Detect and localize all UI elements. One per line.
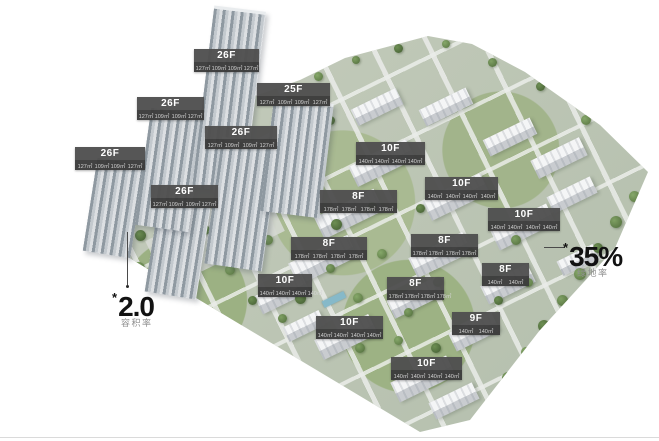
unit-area-value: 127㎡ [260, 97, 275, 105]
unit-area-value: 127㎡ [208, 140, 223, 148]
unit-area-value: 178㎡ [389, 291, 404, 299]
unit-area-value: 140㎡ [479, 326, 494, 334]
unit-area-value: 127㎡ [77, 161, 92, 169]
unit-area-value: 140㎡ [308, 288, 323, 296]
tree [581, 115, 591, 125]
unit-area-list: 140㎡140㎡140㎡140㎡ [425, 190, 498, 200]
tree [277, 360, 287, 370]
building-block [428, 382, 479, 419]
asterisk-mark: * [563, 240, 568, 255]
unit-area-list: 127㎡109㎡109㎡127㎡ [257, 96, 330, 106]
floor-count-label: 8F [320, 190, 397, 203]
floor-count-label: 25F [257, 83, 330, 96]
floor-badge: 10F140㎡140㎡140㎡140㎡ [488, 208, 560, 231]
unit-area-value: 140㎡ [391, 156, 406, 164]
unit-area-value: 109㎡ [228, 63, 243, 71]
unit-area-value: 109㎡ [185, 199, 200, 207]
image-bottom-edge [0, 437, 659, 438]
unit-area-value: 140㎡ [358, 156, 373, 164]
floor-badge: 8F178㎡178㎡178㎡178㎡ [387, 277, 444, 300]
unit-area-list: 178㎡178㎡178㎡178㎡ [387, 290, 444, 300]
unit-area-value: 109㎡ [277, 97, 292, 105]
unit-area-list: 140㎡140㎡140㎡140㎡ [356, 155, 425, 165]
unit-area-value: 140㎡ [428, 191, 443, 199]
tree [488, 58, 497, 67]
unit-area-value: 140㎡ [394, 371, 409, 379]
floor-badge: 26F127㎡109㎡109㎡127㎡ [75, 147, 145, 170]
unit-area-value: 178㎡ [295, 251, 310, 259]
tree [132, 262, 145, 275]
greening-rate-label: 绿地率 [577, 266, 609, 279]
unit-area-value: 140㎡ [318, 330, 333, 338]
unit-area-value: 140㎡ [260, 288, 275, 296]
unit-area-value: 178㎡ [378, 204, 393, 212]
unit-area-value: 109㎡ [212, 63, 227, 71]
tree [353, 293, 363, 303]
building-block [419, 88, 474, 127]
tree [629, 191, 640, 202]
tree [610, 216, 622, 228]
tree [394, 44, 403, 53]
floor-badge: 26F127㎡109㎡109㎡127㎡ [194, 49, 259, 72]
unit-area-value: 127㎡ [201, 199, 216, 207]
floor-badge: 9F140㎡140㎡ [452, 312, 500, 335]
floor-badge: 8F178㎡178㎡178㎡178㎡ [291, 237, 367, 260]
floor-count-label: 10F [356, 142, 425, 155]
tree [404, 308, 413, 317]
tree [536, 82, 545, 91]
unit-area-value: 178㎡ [405, 291, 420, 299]
unit-area-value: 140㎡ [411, 371, 426, 379]
unit-area-value: 109㎡ [295, 97, 310, 105]
unit-area-list: 140㎡140㎡140㎡140㎡ [316, 329, 383, 339]
tree [326, 264, 335, 273]
tree [331, 219, 342, 230]
unit-area-value: 127㎡ [259, 140, 274, 148]
tree [557, 295, 568, 306]
tree [324, 392, 336, 404]
unit-area-list: 140㎡140㎡140㎡140㎡ [488, 221, 560, 231]
unit-area-value: 127㎡ [153, 199, 168, 207]
unit-area-list: 178㎡178㎡178㎡178㎡ [320, 203, 397, 213]
tree [377, 249, 387, 259]
floor-badge: 26F127㎡109㎡109㎡127㎡ [137, 97, 204, 120]
unit-area-value: 178㎡ [324, 204, 339, 212]
tree [196, 306, 209, 319]
floor-badge: 10F140㎡140㎡140㎡140㎡ [391, 357, 462, 380]
unit-area-list: 140㎡140㎡ [452, 325, 500, 335]
unit-area-value: 140㎡ [508, 222, 523, 230]
unit-area-value: 140㎡ [542, 222, 557, 230]
unit-area-value: 140㎡ [458, 326, 473, 334]
tree [511, 235, 521, 245]
tree [538, 320, 550, 332]
unit-area-value: 140㎡ [525, 222, 540, 230]
unit-area-list: 127㎡109㎡109㎡127㎡ [194, 62, 259, 72]
unit-area-value: 109㎡ [155, 111, 170, 119]
floor-count-label: 10F [258, 274, 312, 287]
building-block [351, 88, 404, 126]
tree [355, 343, 365, 353]
asterisk-mark: * [112, 290, 117, 305]
unit-area-value: 109㎡ [111, 161, 126, 169]
tree [431, 343, 441, 353]
unit-area-value: 140㎡ [375, 156, 390, 164]
unit-area-value: 178㎡ [313, 251, 328, 259]
unit-area-value: 178㎡ [445, 248, 460, 256]
tree [314, 72, 323, 81]
tree [213, 317, 223, 327]
unit-area-list: 178㎡178㎡178㎡178㎡ [291, 250, 367, 260]
floor-badge: 8F178㎡178㎡178㎡178㎡ [320, 190, 397, 213]
unit-area-value: 140㎡ [428, 371, 443, 379]
tree [394, 336, 403, 345]
unit-area-value: 178㎡ [342, 204, 357, 212]
unit-area-list: 127㎡109㎡109㎡127㎡ [205, 139, 277, 149]
unit-area-list: 140㎡140㎡ [482, 276, 529, 286]
tree [245, 338, 256, 349]
unit-area-value: 140㎡ [334, 330, 349, 338]
unit-area-value: 178㎡ [429, 248, 444, 256]
floor-count-label: 10F [488, 208, 560, 221]
unit-area-value: 140㎡ [350, 330, 365, 338]
tree [356, 412, 368, 424]
greening-rate-connector-line [544, 247, 565, 248]
floor-count-label: 8F [387, 277, 444, 290]
unit-area-list: 127㎡109㎡109㎡127㎡ [151, 198, 218, 208]
floor-badge: 10F140㎡140㎡140㎡140㎡ [316, 316, 383, 339]
unit-area-value: 140㎡ [408, 156, 423, 164]
unit-area-value: 140㎡ [445, 191, 460, 199]
floor-count-label: 26F [205, 126, 277, 139]
plot-ratio-label: 容积率 [121, 316, 153, 329]
floor-count-label: 26F [194, 49, 259, 62]
floor-count-label: 26F [75, 147, 145, 160]
unit-area-value: 140㎡ [480, 191, 495, 199]
unit-area-value: 127㎡ [139, 111, 154, 119]
unit-area-value: 140㎡ [445, 371, 460, 379]
floor-count-label: 10F [425, 177, 498, 190]
floor-count-label: 10F [316, 316, 383, 329]
floor-badge: 26F127㎡109㎡109㎡127㎡ [151, 185, 218, 208]
unit-area-list: 140㎡140㎡140㎡140㎡ [258, 287, 312, 297]
unit-area-value: 140㎡ [292, 288, 307, 296]
floor-count-label: 10F [391, 357, 462, 370]
tree [502, 372, 514, 384]
tree [135, 230, 146, 241]
unit-area-value: 178㎡ [461, 248, 476, 256]
unit-area-value: 178㎡ [331, 251, 346, 259]
tree [341, 403, 351, 413]
unit-area-value: 109㎡ [169, 199, 184, 207]
unit-area-value: 178㎡ [360, 204, 375, 212]
unit-area-value: 178㎡ [421, 291, 436, 299]
tree [416, 204, 425, 213]
tree [309, 382, 320, 393]
unit-area-value: 127㎡ [196, 63, 211, 71]
floor-badge: 10F140㎡140㎡140㎡140㎡ [258, 274, 312, 297]
floor-badge: 10F140㎡140㎡140㎡140㎡ [425, 177, 498, 200]
building-block [483, 118, 538, 157]
floor-badge: 26F127㎡109㎡109㎡127㎡ [205, 126, 277, 149]
tree [278, 314, 287, 323]
tree [494, 296, 503, 305]
floor-badge: 8F178㎡178㎡178㎡178㎡ [411, 234, 478, 257]
swimming-pool [322, 291, 347, 308]
unit-area-list: 178㎡178㎡178㎡178㎡ [411, 247, 478, 257]
unit-area-value: 178㎡ [349, 251, 364, 259]
floor-count-label: 9F [452, 312, 500, 325]
floor-badge: 10F140㎡140㎡140㎡140㎡ [356, 142, 425, 165]
aerial-site-plan: 26F127㎡109㎡109㎡127㎡26F127㎡109㎡109㎡127㎡26… [0, 0, 659, 441]
floor-count-label: 8F [482, 263, 529, 276]
unit-area-value: 140㎡ [508, 277, 523, 285]
unit-area-list: 127㎡109㎡109㎡127㎡ [137, 110, 204, 120]
floor-count-label: 8F [291, 237, 367, 250]
tree [292, 370, 304, 382]
unit-area-value: 109㎡ [242, 140, 257, 148]
unit-area-value: 140㎡ [366, 330, 381, 338]
unit-area-value: 178㎡ [437, 291, 452, 299]
unit-area-value: 178㎡ [413, 248, 428, 256]
floor-count-label: 26F [137, 97, 204, 110]
unit-area-value: 109㎡ [171, 111, 186, 119]
unit-area-value: 140㎡ [488, 277, 503, 285]
floor-badge: 8F140㎡140㎡ [482, 263, 529, 286]
unit-area-value: 127㎡ [312, 97, 327, 105]
building-block [530, 137, 587, 179]
unit-area-value: 109㎡ [225, 140, 240, 148]
tree [352, 56, 360, 64]
tree [260, 348, 273, 361]
unit-area-value: 127㎡ [128, 161, 143, 169]
tree [521, 347, 531, 357]
tree [248, 296, 257, 305]
unit-area-value: 127㎡ [187, 111, 202, 119]
unit-area-list: 140㎡140㎡140㎡140㎡ [391, 370, 462, 380]
floor-badge: 25F127㎡109㎡109㎡127㎡ [257, 83, 330, 106]
tree [442, 40, 450, 48]
tree [228, 327, 240, 339]
floor-count-label: 26F [151, 185, 218, 198]
tree [487, 397, 498, 408]
unit-area-value: 127㎡ [244, 63, 259, 71]
unit-area-value: 140㎡ [276, 288, 291, 296]
unit-area-value: 140㎡ [463, 191, 478, 199]
unit-area-value: 140㎡ [491, 222, 506, 230]
unit-area-value: 109㎡ [94, 161, 109, 169]
unit-area-list: 127㎡109㎡109㎡127㎡ [75, 160, 145, 170]
plot-ratio-connector-line [127, 232, 128, 285]
floor-count-label: 8F [411, 234, 478, 247]
